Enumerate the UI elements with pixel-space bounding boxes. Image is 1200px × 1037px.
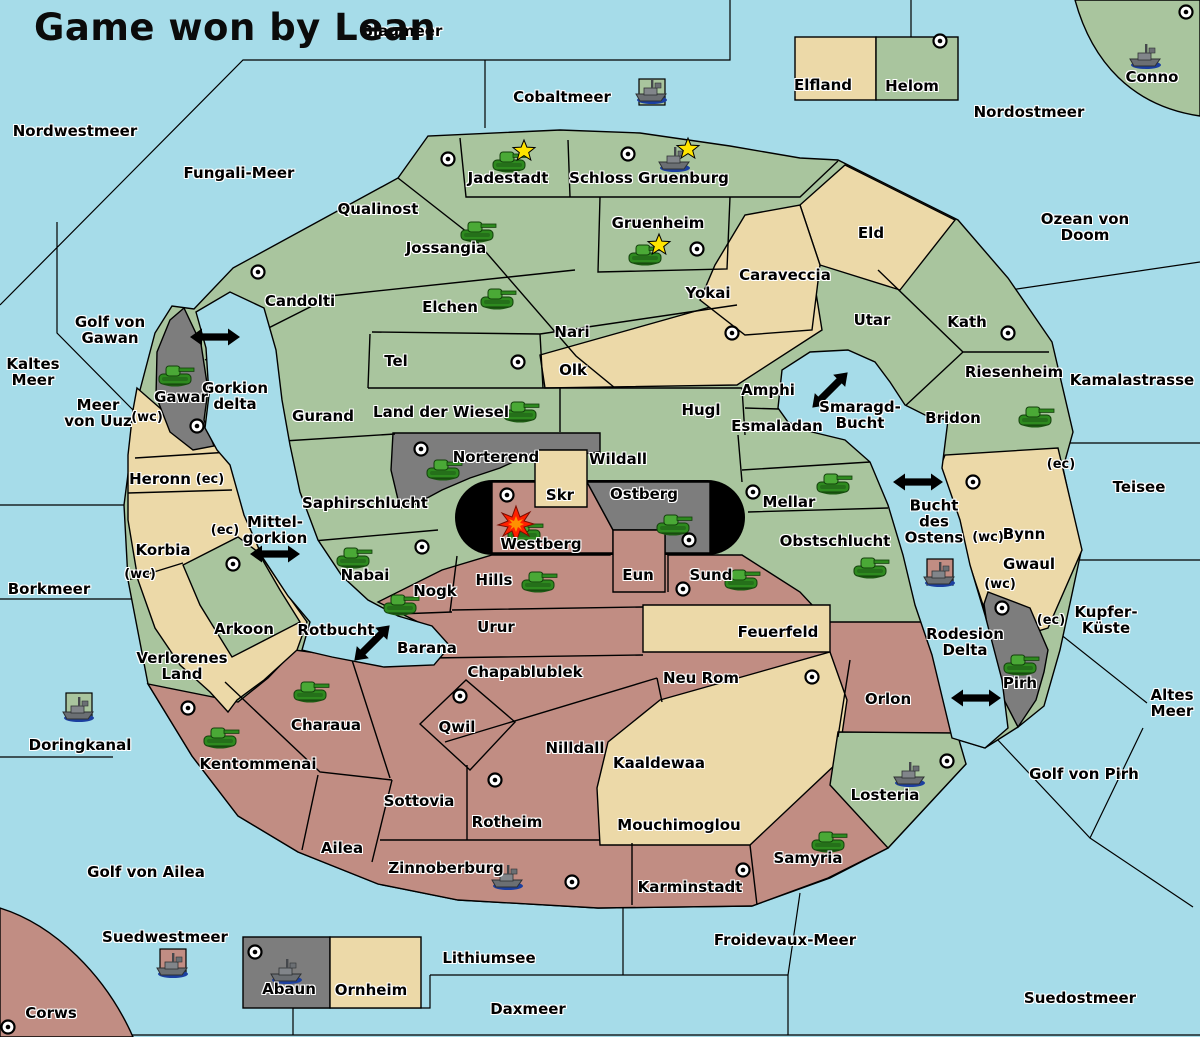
- elfland-helom-box: [795, 37, 958, 100]
- region-eun[interactable]: [613, 530, 665, 592]
- game-map-screen: BlaumeerNordwestmeerCobaltmeerNordostmee…: [0, 0, 1200, 1037]
- city-dot-3[interactable]: [622, 148, 635, 161]
- city-dot-15[interactable]: [967, 476, 980, 489]
- city-dot-8[interactable]: [1002, 327, 1015, 340]
- city-dot-12[interactable]: [501, 489, 514, 502]
- city-dot-27[interactable]: [249, 946, 262, 959]
- city-dot-25[interactable]: [996, 602, 1009, 615]
- city-dot-9[interactable]: [191, 420, 204, 433]
- city-dot-24[interactable]: [941, 755, 954, 768]
- world-map: [0, 0, 1200, 1037]
- city-dot-1[interactable]: [1180, 6, 1193, 19]
- city-dot-22[interactable]: [566, 876, 579, 889]
- region-feuerfeld[interactable]: [643, 605, 830, 652]
- region-ornheim[interactable]: [330, 937, 421, 1008]
- city-dot-5[interactable]: [691, 243, 704, 256]
- city-dot-2[interactable]: [442, 153, 455, 166]
- city-dot-0[interactable]: [934, 35, 947, 48]
- city-dot-14[interactable]: [747, 486, 760, 499]
- city-dot-13[interactable]: [683, 534, 696, 547]
- city-dot-11[interactable]: [416, 541, 429, 554]
- city-dot-23[interactable]: [737, 864, 750, 877]
- city-dot-18[interactable]: [454, 690, 467, 703]
- city-dot-20[interactable]: [182, 702, 195, 715]
- city-dot-6[interactable]: [512, 356, 525, 369]
- region-helom[interactable]: [876, 37, 958, 100]
- city-dot-21[interactable]: [489, 774, 502, 787]
- city-dot-4[interactable]: [252, 266, 265, 279]
- city-dot-16[interactable]: [227, 558, 240, 571]
- city-dot-26[interactable]: [2, 1021, 15, 1034]
- city-dot-7[interactable]: [726, 327, 739, 340]
- region-skr[interactable]: [535, 450, 587, 507]
- city-dot-17[interactable]: [677, 583, 690, 596]
- region-elfland[interactable]: [795, 37, 876, 100]
- city-dot-19[interactable]: [806, 671, 819, 684]
- city-dot-10[interactable]: [415, 443, 428, 456]
- abaun-ornheim-box: [243, 937, 421, 1008]
- game-result-title: Game won by Lean: [34, 6, 436, 49]
